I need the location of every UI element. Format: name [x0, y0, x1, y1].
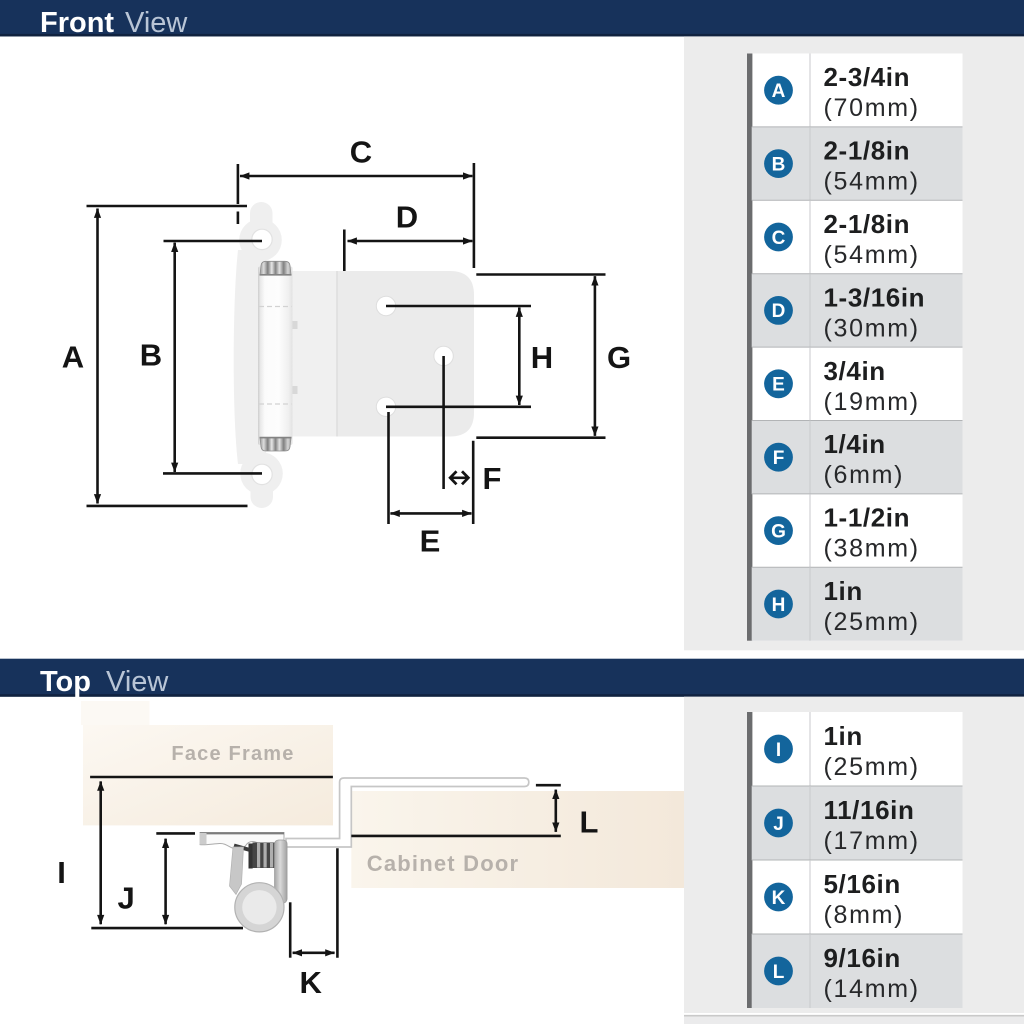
svg-text:5/16in: 5/16in [824, 869, 901, 899]
svg-text:2-1/8in: 2-1/8in [824, 209, 911, 239]
svg-text:(30mm): (30mm) [824, 314, 920, 342]
svg-text:(70mm): (70mm) [824, 94, 920, 122]
svg-text:3/4in: 3/4in [824, 356, 886, 386]
svg-text:E: E [772, 375, 785, 396]
svg-text:View: View [106, 666, 169, 698]
svg-text:G: G [607, 340, 631, 375]
svg-text:K: K [772, 888, 786, 909]
svg-text:L: L [773, 962, 785, 983]
svg-text:(25mm): (25mm) [824, 753, 920, 781]
svg-text:1/4in: 1/4in [824, 429, 886, 459]
svg-text:F: F [773, 448, 785, 469]
svg-text:H: H [531, 340, 553, 375]
svg-text:(19mm): (19mm) [824, 388, 920, 416]
svg-text:Cabinet Door: Cabinet Door [367, 851, 520, 876]
svg-text:2-3/4in: 2-3/4in [824, 62, 911, 92]
svg-text:C: C [772, 228, 786, 249]
svg-text:B: B [772, 154, 786, 175]
svg-text:(54mm): (54mm) [824, 241, 920, 269]
svg-text:J: J [117, 881, 134, 916]
svg-text:(14mm): (14mm) [824, 975, 920, 1003]
svg-text:B: B [140, 338, 162, 373]
svg-text:J: J [773, 814, 784, 835]
svg-text:K: K [300, 965, 323, 1000]
svg-text:1in: 1in [824, 721, 863, 751]
svg-text:G: G [771, 521, 786, 542]
svg-text:Face Frame: Face Frame [171, 743, 294, 765]
svg-text:2-1/8in: 2-1/8in [824, 136, 911, 166]
svg-text:I: I [776, 740, 781, 761]
svg-text:I: I [57, 855, 66, 890]
svg-text:D: D [772, 301, 786, 322]
svg-text:(25mm): (25mm) [824, 608, 920, 636]
svg-text:(8mm): (8mm) [824, 901, 905, 929]
svg-text:Top: Top [40, 666, 91, 698]
svg-text:1-3/16in: 1-3/16in [824, 282, 926, 312]
svg-text:View: View [125, 7, 188, 39]
svg-text:11/16in: 11/16in [824, 795, 915, 825]
svg-text:C: C [350, 135, 372, 170]
svg-text:(17mm): (17mm) [824, 827, 920, 855]
svg-text:A: A [772, 81, 786, 102]
svg-text:A: A [62, 340, 84, 375]
svg-text:F: F [483, 461, 502, 496]
svg-text:9/16in: 9/16in [824, 943, 901, 973]
svg-text:L: L [580, 805, 599, 840]
svg-text:E: E [420, 524, 441, 559]
svg-text:(54mm): (54mm) [824, 168, 920, 196]
svg-text:H: H [772, 595, 786, 616]
svg-text:1-1/2in: 1-1/2in [824, 503, 911, 533]
svg-text:Front: Front [40, 7, 114, 39]
svg-text:(38mm): (38mm) [824, 535, 920, 563]
svg-text:(6mm): (6mm) [824, 461, 905, 489]
svg-text:1in: 1in [824, 576, 863, 606]
svg-text:D: D [396, 200, 418, 235]
